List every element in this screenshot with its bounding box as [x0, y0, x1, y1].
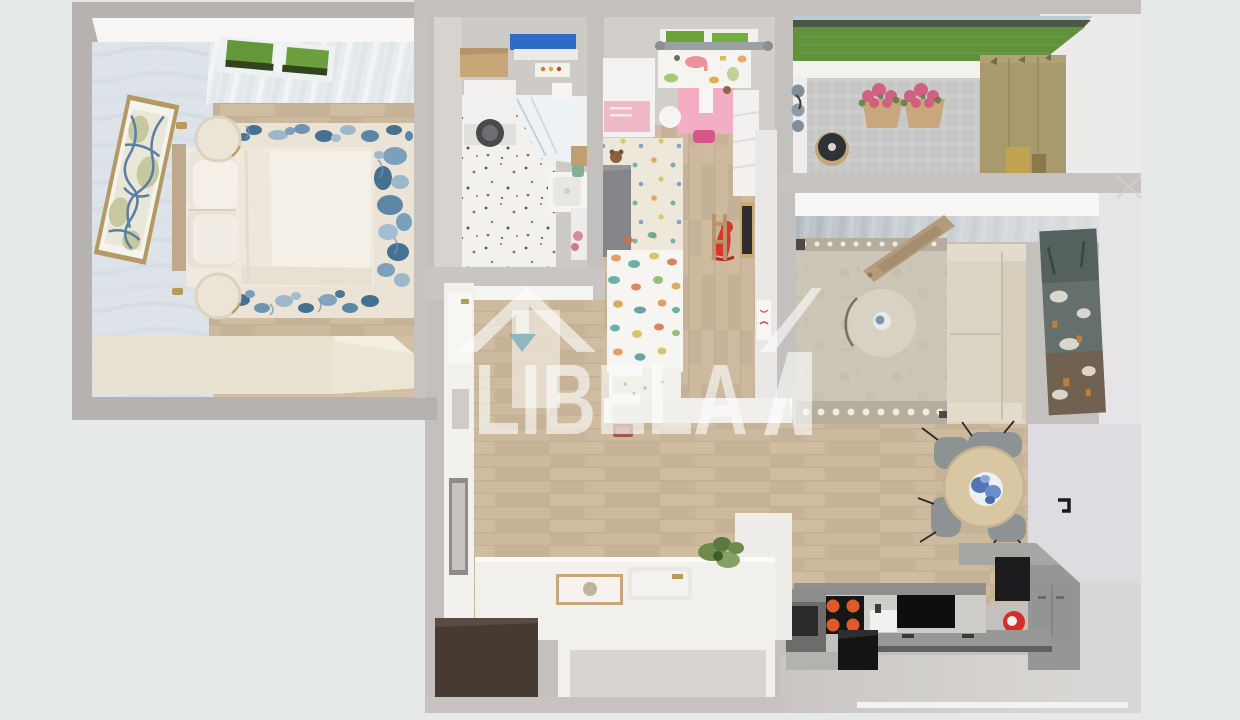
svg-text:LIBELA: LIBELA: [474, 344, 748, 456]
